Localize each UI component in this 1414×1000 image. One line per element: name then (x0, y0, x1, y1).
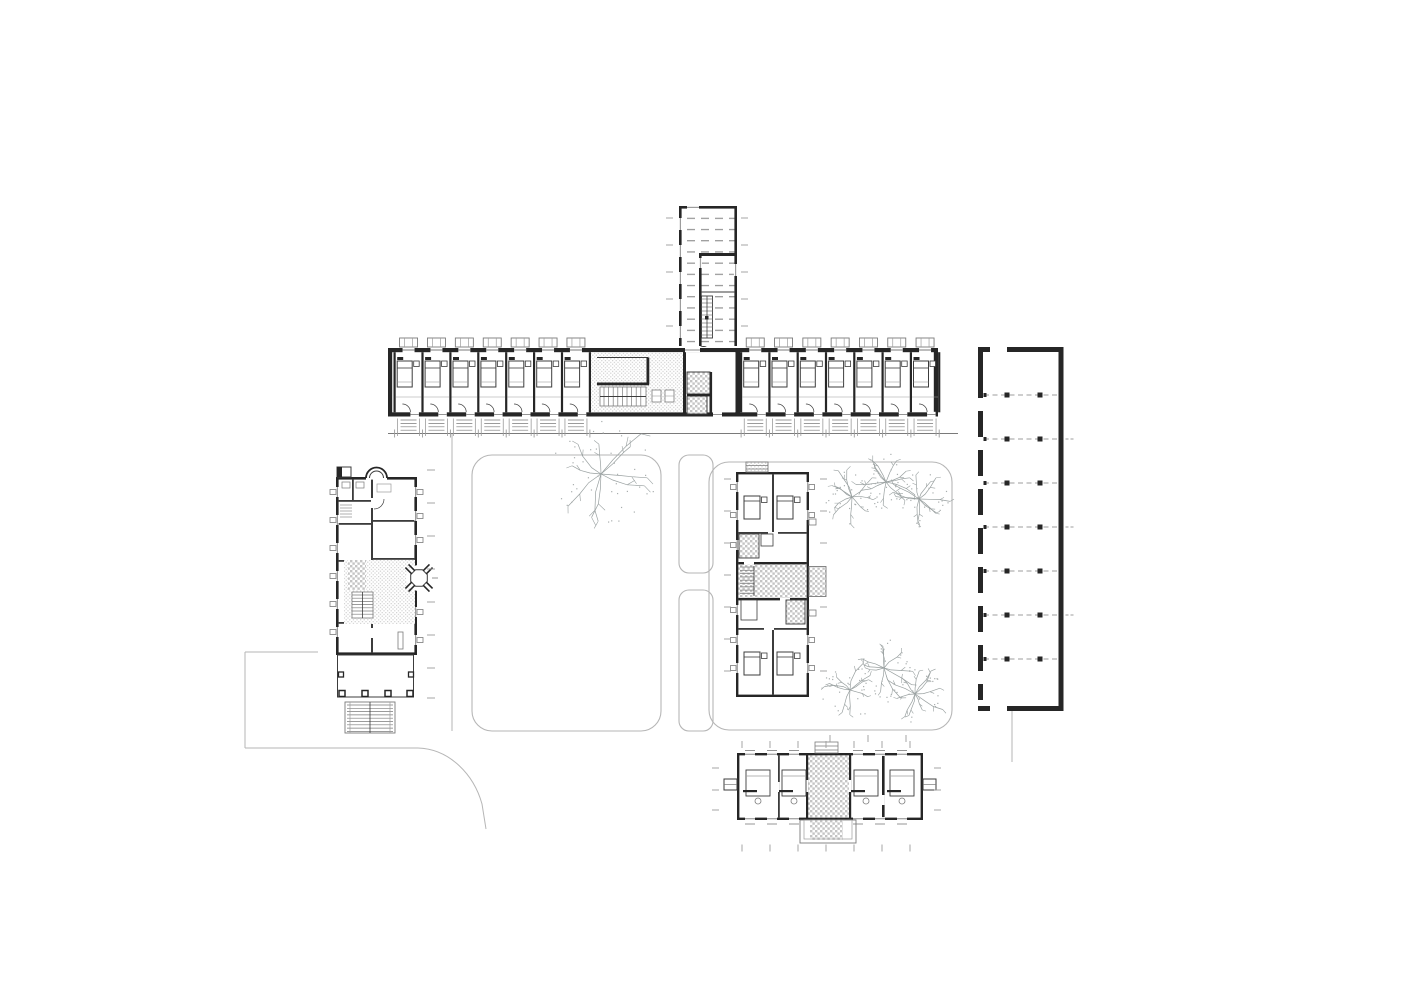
roof-pier-box (511, 338, 529, 347)
terrace-steps (537, 419, 559, 437)
terrace-steps (857, 419, 879, 437)
main-wing (388, 336, 940, 437)
roof-pier-box (455, 338, 473, 347)
terrace-steps (453, 419, 475, 437)
roof-pier-box (859, 338, 877, 347)
entrance-lobby (591, 348, 686, 417)
terrace-steps (481, 419, 503, 437)
terrace-steps (425, 419, 447, 437)
roof-pier-box (831, 338, 849, 347)
roof-pier-box (400, 338, 418, 347)
roof-pier-box (427, 338, 445, 347)
north-wing (666, 206, 748, 347)
roof-pier-box (888, 338, 906, 347)
terrace-steps (801, 419, 823, 437)
tree (858, 640, 917, 698)
tree (826, 466, 881, 528)
roof-pier-box (539, 338, 557, 347)
end-balcony (923, 779, 936, 790)
tree (555, 421, 654, 529)
terrace-steps (914, 419, 936, 437)
central-pavilion (731, 462, 827, 697)
octagonal-vestibule (405, 564, 438, 591)
terrace-steps (829, 419, 851, 437)
tree (889, 472, 954, 528)
lobby-stair (600, 387, 646, 406)
roof-pier-box (916, 338, 934, 347)
villa-exterior-stair (345, 702, 395, 733)
site-plan-canvas (0, 0, 1414, 1000)
terrace-steps (509, 419, 531, 437)
north-entry-steps (815, 742, 838, 753)
roof-pier-box (567, 338, 585, 347)
villa (330, 467, 438, 733)
planting-strip-south (679, 590, 713, 731)
end-balcony (724, 779, 737, 790)
terrace-steps (565, 419, 587, 437)
terrace-steps (398, 419, 420, 437)
south-pavilion (712, 741, 941, 852)
roof-pier-box (803, 338, 821, 347)
tree (886, 667, 946, 723)
entry-hall (738, 565, 826, 599)
carport (978, 347, 1074, 711)
roof-pier-box (483, 338, 501, 347)
site-plan-drawing (0, 0, 1414, 1000)
south-porch (800, 820, 856, 843)
court-stair (352, 592, 373, 618)
roof-pier-box (775, 338, 793, 347)
terrace-steps (773, 419, 795, 437)
roof-pier-box (746, 338, 764, 347)
tree (821, 658, 875, 717)
stair-core (685, 336, 740, 418)
terrace-steps (744, 419, 766, 437)
terrace-steps (886, 419, 908, 437)
site-ticks (395, 430, 940, 743)
west-lawn (472, 455, 661, 731)
entry-steps (746, 462, 768, 472)
villa-porch (338, 655, 414, 697)
planting-strip-north (679, 455, 713, 573)
